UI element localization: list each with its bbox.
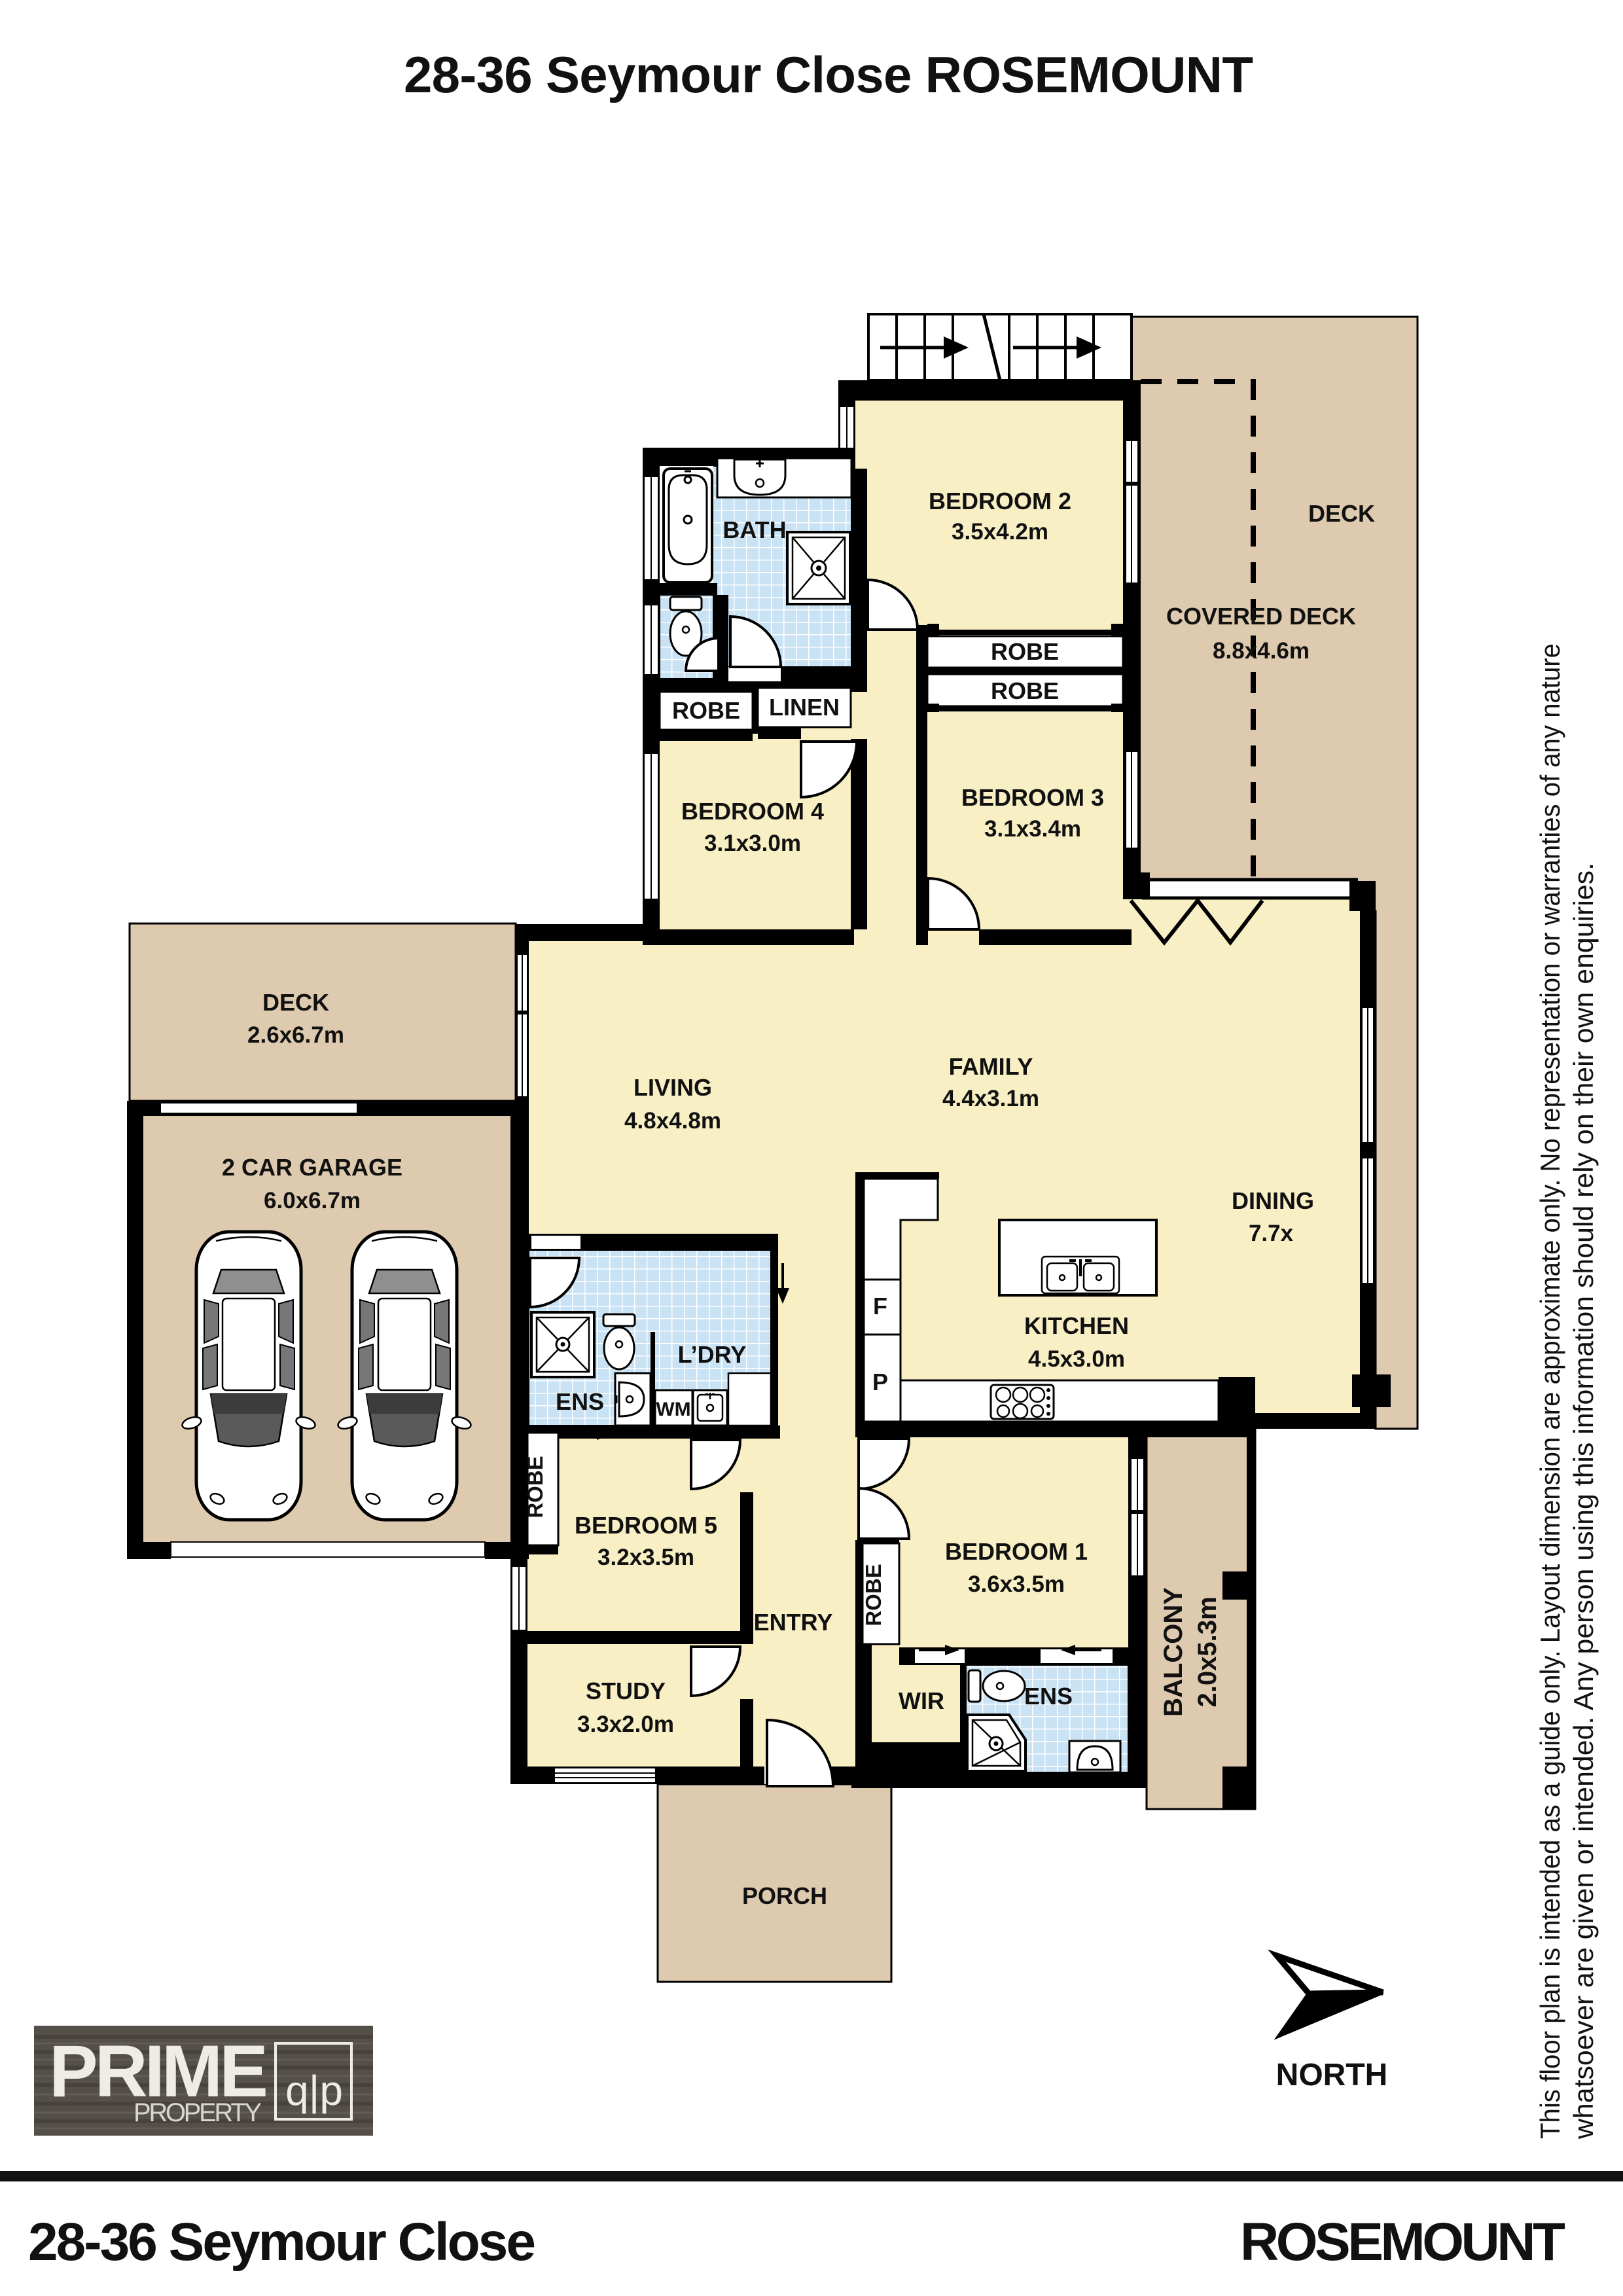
svg-text:PORCH: PORCH <box>742 1882 827 1909</box>
svg-text:2.0x5.3m: 2.0x5.3m <box>1193 1596 1222 1707</box>
svg-text:BEDROOM 5: BEDROOM 5 <box>575 1512 717 1539</box>
svg-text:4.5x3.0m: 4.5x3.0m <box>1028 1346 1125 1372</box>
svg-text:DECK: DECK <box>1308 500 1375 527</box>
svg-text:COVERED DECK: COVERED DECK <box>1166 603 1356 630</box>
svg-text:PROPERTY: PROPERTY <box>134 2098 266 2127</box>
svg-text:ENS: ENS <box>556 1388 604 1415</box>
svg-text:3.2x3.5m: 3.2x3.5m <box>597 1545 694 1570</box>
svg-text:FAMILY: FAMILY <box>949 1053 1033 1080</box>
svg-text:4.8x4.8m: 4.8x4.8m <box>624 1108 721 1134</box>
svg-text:BEDROOM 3: BEDROOM 3 <box>961 784 1104 811</box>
svg-text:STUDY: STUDY <box>586 1677 666 1704</box>
svg-text:ROBE: ROBE <box>861 1564 885 1626</box>
svg-text:3.6x3.5m: 3.6x3.5m <box>968 1571 1065 1597</box>
svg-text:ROBE: ROBE <box>523 1456 547 1518</box>
svg-text:ROSEMOUNT: ROSEMOUNT <box>1240 2212 1565 2272</box>
svg-text:3.1x3.0m: 3.1x3.0m <box>704 831 801 856</box>
svg-text:6.0x6.7m: 6.0x6.7m <box>264 1188 361 1213</box>
svg-text:DECK: DECK <box>262 989 329 1016</box>
svg-text:3.1x3.4m: 3.1x3.4m <box>984 816 1081 842</box>
svg-text:3.5x4.2m: 3.5x4.2m <box>952 519 1048 545</box>
svg-text:ROBE: ROBE <box>991 677 1059 704</box>
svg-text:4.4x3.1m: 4.4x3.1m <box>942 1086 1039 1111</box>
svg-text:L’DRY: L’DRY <box>678 1341 747 1368</box>
svg-text:BEDROOM 1: BEDROOM 1 <box>945 1538 1088 1565</box>
svg-text:F: F <box>873 1293 887 1319</box>
svg-text:ROBE: ROBE <box>672 697 740 724</box>
svg-text:ENTRY: ENTRY <box>754 1609 833 1636</box>
svg-text:2.6x6.7m: 2.6x6.7m <box>247 1022 344 1048</box>
svg-text:WIR: WIR <box>899 1687 944 1714</box>
svg-text:LINEN: LINEN <box>769 694 840 721</box>
svg-text:KITCHEN: KITCHEN <box>1024 1312 1129 1339</box>
svg-text:BEDROOM 4: BEDROOM 4 <box>681 798 824 825</box>
svg-text:BATH: BATH <box>722 516 786 543</box>
svg-text:This floor plan is intended as: This floor plan is intended as a guide o… <box>1535 643 1565 2139</box>
svg-text:8.8x4.6m: 8.8x4.6m <box>1213 638 1310 664</box>
svg-text:BEDROOM 2: BEDROOM 2 <box>929 488 1071 514</box>
svg-text:DINING: DINING <box>1232 1187 1314 1214</box>
svg-text:NORTH: NORTH <box>1276 2058 1388 2092</box>
svg-text:3.3x2.0m: 3.3x2.0m <box>577 1712 674 1737</box>
svg-text:ROBE: ROBE <box>991 638 1059 665</box>
svg-text:28-36 Seymour Close: 28-36 Seymour Close <box>28 2212 536 2272</box>
svg-text:whatsoever are given or intend: whatsoever are given or intended. Any pe… <box>1568 863 1599 2140</box>
svg-text:7.7x: 7.7x <box>1249 1221 1294 1246</box>
svg-text:WM: WM <box>656 1399 690 1420</box>
svg-text:BALCONY: BALCONY <box>1159 1587 1188 1717</box>
svg-text:28-36 Seymour Close ROSEMOUNT: 28-36 Seymour Close ROSEMOUNT <box>404 46 1253 103</box>
svg-text:LIVING: LIVING <box>633 1074 712 1101</box>
svg-text:q|p: q|p <box>285 2067 343 2114</box>
svg-text:2 CAR GARAGE: 2 CAR GARAGE <box>222 1154 402 1181</box>
svg-text:P: P <box>872 1369 888 1395</box>
svg-text:ENS: ENS <box>1024 1683 1073 1710</box>
